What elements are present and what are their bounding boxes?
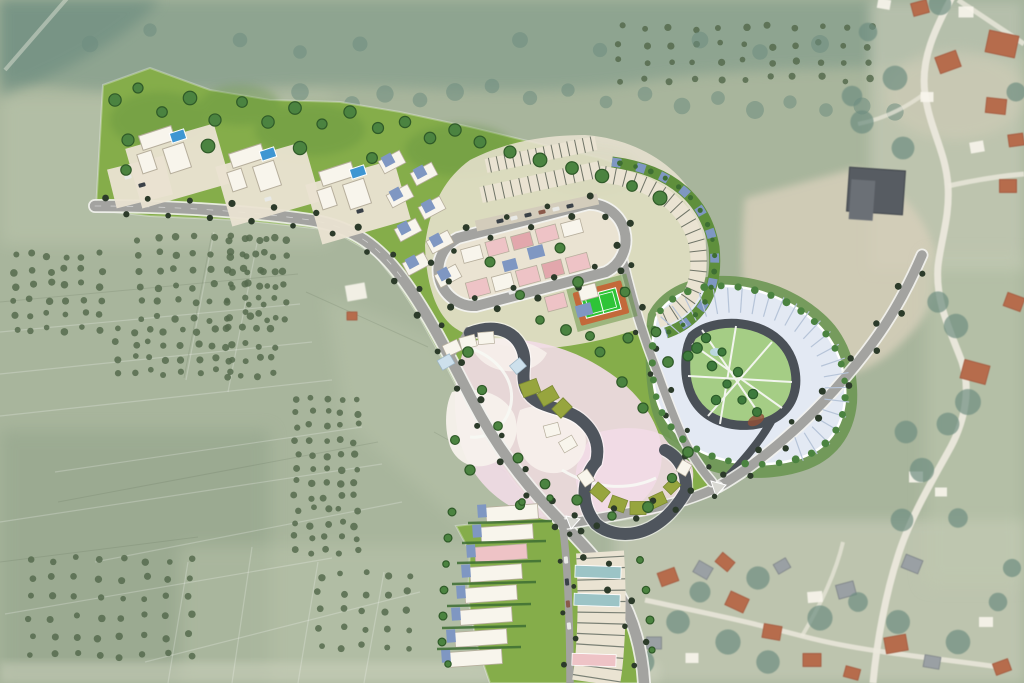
orchard-tree (73, 554, 79, 560)
street-tree (627, 220, 634, 227)
street-tree (676, 184, 681, 189)
garden-tree (121, 165, 131, 175)
forest-tree (746, 101, 764, 119)
street-tree (698, 208, 703, 213)
street-tree (720, 471, 726, 477)
village-house-red-roof (985, 97, 1006, 114)
orchard-tree (615, 56, 621, 62)
orchard-tree (864, 44, 871, 51)
garden-tree (133, 83, 143, 93)
orchard-tree (350, 440, 357, 447)
village-tree (955, 389, 981, 415)
street-tree (474, 423, 480, 429)
orchard-tree (338, 492, 345, 499)
street-tree (706, 464, 711, 469)
garden-tree (653, 191, 667, 205)
orchard-tree (843, 79, 849, 85)
orchard-tree (157, 268, 164, 275)
village-house-white-roof (807, 591, 823, 603)
street-tree (567, 531, 573, 537)
orchard-tree (167, 559, 173, 565)
orchard-tree (318, 574, 325, 581)
street-tree (718, 282, 725, 289)
orchard-tree (117, 615, 124, 622)
orchard-tree (96, 250, 102, 256)
orchard-tree (292, 409, 298, 415)
orchard-tree (293, 465, 300, 472)
street-tree (414, 312, 421, 319)
orchard-tree (139, 297, 145, 303)
orchard-tree (242, 295, 248, 301)
street-tree (187, 198, 193, 204)
orchard-tree (62, 297, 69, 304)
forest-tree (143, 23, 156, 36)
orchard-tree (692, 76, 698, 82)
street-tree (558, 559, 563, 564)
orchard-tree (340, 397, 346, 403)
street-tree (631, 663, 637, 669)
map-canvas (0, 0, 1024, 683)
village-house-red-roof (762, 624, 782, 641)
street-tree (592, 264, 598, 270)
orchard-tree (121, 555, 128, 562)
street-tree (747, 473, 753, 479)
street-tree (759, 461, 766, 468)
street-garden-tree (663, 357, 674, 368)
orchard-tree (272, 345, 278, 351)
orchard-tree (207, 251, 213, 257)
orchard-tree (293, 396, 300, 403)
street-tree (390, 252, 396, 258)
village-tree (886, 610, 910, 634)
orchard-tree (358, 608, 364, 614)
orchard-tree (256, 237, 263, 244)
street-tree (606, 561, 612, 567)
orchard-tree (134, 237, 140, 243)
street-tree (705, 222, 710, 227)
street-tree (545, 204, 551, 210)
park-tree (701, 333, 710, 342)
orchard-tree (319, 643, 325, 649)
orchard-tree (257, 267, 264, 274)
forest-tree (376, 85, 393, 102)
village-tree (850, 110, 873, 133)
orchard-tree (173, 252, 180, 259)
street-tree (811, 318, 818, 325)
orchard-tree (148, 367, 154, 373)
orchard-tree (280, 281, 286, 287)
hedge-tree (448, 508, 456, 516)
orchard-tree (28, 556, 35, 563)
orchard-tree (384, 645, 390, 651)
street-tree (643, 639, 649, 645)
orchard-tree (292, 546, 299, 553)
parked-car (566, 600, 571, 607)
orchard-tree (175, 296, 181, 302)
townhouse-garage-blue (456, 585, 466, 599)
street-tree (573, 636, 579, 642)
orchard-tree (10, 298, 16, 304)
street-tree (613, 242, 620, 249)
orchard-tree (256, 344, 262, 350)
street-tree (669, 295, 676, 302)
street-tree (472, 295, 478, 301)
orchard-tree (227, 369, 233, 375)
street-tree (659, 409, 666, 416)
orchard-tree (381, 609, 388, 616)
orchard-tree (96, 327, 103, 334)
orchard-tree (271, 234, 278, 241)
street-garden-tree (683, 447, 693, 457)
orchard-tree (335, 506, 341, 512)
orchard-tree (407, 573, 413, 579)
street-garden-tree (651, 327, 660, 336)
street-tree (751, 286, 759, 294)
orchard-tree (28, 250, 35, 257)
orchard-tree (15, 327, 21, 333)
orchard-tree (63, 312, 69, 318)
orchard-tree (315, 625, 322, 632)
orchard-tree (339, 533, 345, 539)
street-garden-tree (494, 422, 503, 431)
orchard-tree (270, 254, 276, 260)
hedge-tree (547, 495, 553, 501)
orchard-tree (228, 281, 234, 287)
orchard-tree (131, 329, 138, 336)
hedge-tree (649, 647, 655, 653)
orchard-tree (48, 269, 55, 276)
garden-tree (183, 91, 196, 104)
street-tree (687, 487, 694, 494)
village-tree (892, 137, 915, 160)
street-tree (685, 428, 690, 433)
street-tree (819, 388, 826, 395)
street-garden-tree (643, 502, 654, 513)
park-tree (692, 343, 703, 354)
orchard-tree (189, 250, 195, 256)
orchard-tree (138, 316, 144, 322)
orchard-tree (154, 297, 161, 304)
street-tree (248, 218, 255, 225)
street-tree (488, 235, 494, 241)
orchard-tree (27, 328, 33, 334)
parked-car (567, 622, 572, 629)
street-tree (551, 274, 557, 280)
street-tree (228, 200, 235, 207)
orchard-tree (306, 522, 313, 529)
forest-tree (413, 93, 428, 108)
orchard-tree (818, 59, 824, 65)
orchard-tree (98, 594, 104, 600)
orchard-tree (261, 302, 267, 308)
orchard-tree (49, 592, 56, 599)
orchard-tree (229, 357, 235, 363)
street-garden-tree (617, 377, 627, 387)
street-tree (700, 283, 708, 291)
parked-car (564, 556, 569, 563)
park-tree (738, 396, 746, 404)
orchard-tree (362, 627, 368, 633)
orchard-tree (94, 635, 101, 642)
orchard-tree (769, 44, 776, 51)
street-tree (808, 450, 815, 457)
orchard-tree (193, 299, 200, 306)
village-tree (746, 566, 769, 589)
street-tree (330, 231, 336, 237)
garden-tree (344, 106, 356, 118)
orchard-tree (354, 536, 360, 542)
street-tree (451, 248, 457, 254)
orchard-tree (198, 370, 204, 376)
orchard-tree (764, 22, 771, 29)
orchard-tree (27, 313, 33, 319)
orchard-tree (137, 284, 144, 291)
orchard-tree (75, 650, 81, 656)
orchard-tree (385, 592, 392, 599)
park-tree (733, 367, 742, 376)
village-tree (989, 593, 1008, 612)
orchard-tree (241, 281, 248, 288)
forest-tree (593, 43, 607, 57)
orchard-tree (385, 572, 392, 579)
park-tree (718, 348, 726, 356)
forest-tree (600, 96, 613, 109)
street-tree (684, 288, 692, 296)
orchard-tree (162, 612, 169, 619)
orchard-tree (188, 610, 195, 617)
orchard-tree (273, 315, 279, 321)
orchard-tree (30, 575, 37, 582)
orchard-tree (228, 341, 235, 348)
forest-tree (811, 35, 829, 53)
orchard-tree (321, 533, 327, 539)
orchard-tree (209, 343, 216, 350)
orchard-tree (294, 425, 300, 431)
street-tree (898, 310, 905, 317)
forest-tree (353, 37, 368, 52)
street-garden-tree (451, 436, 460, 445)
orchard-tree (98, 298, 105, 305)
orchard-tree (225, 237, 232, 244)
street-tree (587, 192, 594, 199)
orchard-tree (310, 466, 316, 472)
orchard-tree (291, 532, 298, 539)
orchard-tree (254, 373, 261, 380)
orchard-tree (403, 607, 410, 614)
village-house-white-roof (935, 488, 947, 497)
orchard-tree (295, 508, 301, 514)
street-tree (416, 286, 422, 292)
village-house-red-roof (884, 634, 908, 654)
orchard-tree (83, 309, 89, 315)
townhouse-row (455, 629, 508, 648)
orchard-tree (97, 652, 104, 659)
orchard-tree (206, 318, 212, 324)
orchard-tree (337, 571, 343, 577)
street-garden-tree (465, 465, 475, 475)
orchard-tree (667, 42, 674, 49)
street-tree (822, 440, 830, 448)
street-tree (435, 348, 441, 354)
orchard-tree (61, 328, 69, 336)
orchard-tree (866, 75, 874, 83)
street-tree (102, 195, 109, 202)
orchard-tree (162, 635, 169, 642)
street-tree (633, 164, 638, 169)
orchard-tree (155, 234, 162, 241)
garden-tree (424, 132, 435, 143)
garden-tree (399, 116, 410, 127)
street-tree (617, 267, 624, 274)
orchard-tree (159, 328, 166, 335)
street-tree (832, 427, 839, 434)
orchard-tree (406, 628, 412, 634)
forest-tree (485, 79, 500, 94)
forest-tree (638, 87, 653, 102)
orchard-tree (268, 354, 275, 361)
orchard-tree (133, 342, 140, 349)
street-tree (712, 253, 717, 258)
orchard-tree (157, 248, 164, 255)
street-tree (364, 249, 370, 255)
street-tree (145, 196, 151, 202)
garden-tree (262, 116, 274, 128)
street-tree (767, 292, 774, 299)
street-tree (123, 211, 129, 217)
orchard-tree (48, 279, 55, 286)
orchard-tree (350, 492, 356, 498)
orchard-tree (77, 265, 84, 272)
orchard-tree (340, 519, 346, 525)
orchard-tree (363, 592, 370, 599)
orchard-tree (185, 593, 192, 600)
orchard-tree (242, 340, 248, 346)
orchard-tree (135, 268, 142, 275)
street-tree (710, 238, 714, 242)
orchard-tree (96, 556, 103, 563)
terrace-strip-pink (572, 653, 616, 667)
street-tree (355, 224, 362, 231)
garden-tree (372, 122, 383, 133)
orchard-tree (47, 616, 54, 623)
street-tree (783, 298, 791, 306)
orchard-tree (211, 234, 218, 241)
street-tree (797, 307, 804, 314)
orchard-tree (615, 41, 621, 47)
orchard-tree (290, 492, 297, 499)
orchard-tree (27, 652, 33, 658)
orchard-tree (338, 645, 345, 652)
street-tree (815, 415, 822, 422)
street-tree (446, 278, 452, 284)
street-tree (497, 458, 504, 465)
orchard-tree (162, 357, 169, 364)
orchard-tree (43, 310, 49, 316)
orchard-tree (78, 279, 84, 285)
street-tree (741, 460, 749, 468)
orchard-tree (326, 408, 332, 414)
orchard-tree (256, 283, 263, 290)
village-tree (891, 509, 914, 532)
orchard-tree (717, 40, 723, 46)
orchard-tree (120, 596, 126, 602)
forest-tree (692, 32, 709, 49)
village-tree (715, 629, 740, 654)
street-tree (633, 330, 638, 335)
forest-tree (523, 91, 537, 105)
village-house-red-roof (803, 654, 821, 667)
street-tree (755, 446, 762, 453)
orchard-tree (308, 480, 315, 487)
street-tree (657, 307, 664, 314)
street-garden-tree (572, 495, 582, 505)
street-tree (560, 610, 565, 615)
orchard-tree (252, 250, 259, 257)
townhouse-row-pink (475, 544, 528, 563)
hedge-tree (438, 638, 446, 646)
terrace-divider (577, 590, 625, 591)
townhouse-garage-blue (446, 629, 456, 643)
street-tree (578, 528, 585, 535)
orchard-tree (267, 325, 274, 332)
orchard-tree (743, 24, 750, 31)
street-tree (734, 283, 741, 290)
street-tree (391, 278, 398, 285)
street-tree (782, 445, 788, 451)
townhouse-garage-blue (461, 564, 471, 578)
orchard-tree (769, 60, 776, 67)
orchard-tree (112, 338, 119, 345)
street-tree (789, 419, 795, 425)
street-tree (561, 662, 567, 668)
orchard-tree (272, 284, 278, 290)
hedge-tree (519, 499, 525, 505)
orchard-tree (641, 76, 647, 82)
orchard-tree (406, 646, 412, 652)
street-garden-tree (477, 385, 486, 394)
orchard-tree (187, 575, 193, 581)
garden-tree (237, 97, 248, 108)
street-tree (571, 584, 576, 589)
townhouse-garage-blue (472, 524, 482, 538)
street-tree (271, 204, 278, 211)
village-tree (1003, 559, 1021, 577)
orchard-tree (617, 79, 623, 85)
orchard-tree (311, 504, 317, 510)
terrace-strip-teal (574, 593, 620, 607)
village-house-red-roof (347, 312, 357, 320)
orchard-tree (141, 596, 147, 602)
village-tree (807, 605, 832, 630)
orchard-tree (78, 254, 85, 261)
orchard-tree (256, 295, 262, 301)
orchard-tree (310, 408, 316, 414)
street-tree (832, 345, 839, 352)
orchard-tree (324, 465, 330, 471)
garden-tree (157, 107, 168, 118)
orchard-tree (404, 587, 411, 594)
orchard-tree (46, 298, 53, 305)
village-tree (944, 314, 968, 338)
orchard-tree (337, 480, 345, 488)
orchard-tree (253, 325, 260, 332)
orchard-tree (226, 314, 233, 321)
orchard-tree (261, 249, 268, 256)
orchard-tree (116, 654, 123, 661)
street-tree (709, 285, 714, 290)
orchard-tree (30, 633, 36, 639)
street-garden-tree (485, 257, 495, 267)
